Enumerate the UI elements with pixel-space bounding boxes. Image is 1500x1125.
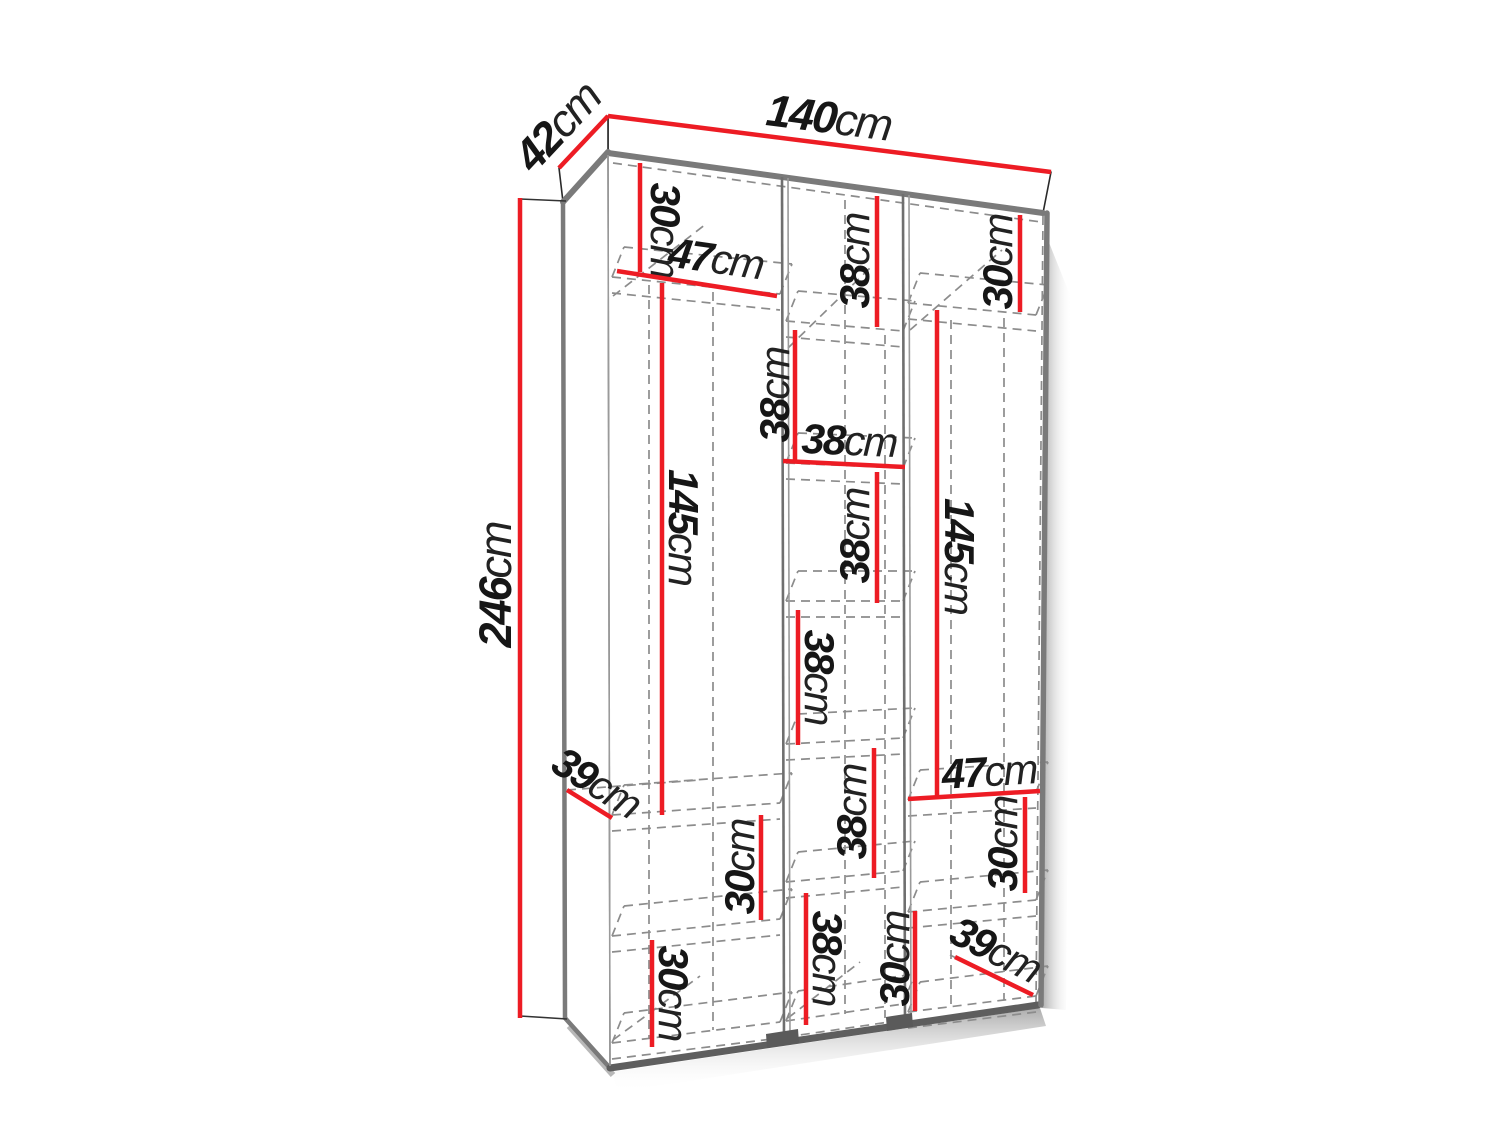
dimension-label: 30cm [974, 214, 1021, 310]
dimension-mid-section-1: 38cm [831, 196, 878, 327]
dimension-label: 145cm [937, 498, 984, 615]
dimension-right-mid-section: 30cm [979, 796, 1026, 893]
dimension-label: 38cm [828, 764, 875, 860]
dimension-label: 30cm [979, 796, 1026, 892]
dimension-label: 38cm [805, 911, 852, 1007]
dimension-label: 38cm [831, 488, 878, 584]
dimension-overall-height: 246cm [470, 198, 521, 1018]
diagram-canvas: 140cm42cm246cm30cm47cm145cm39cm30cm30cm3… [0, 0, 1500, 1125]
dimension-label: 30cm [716, 819, 763, 915]
dimension-right-top-section: 30cm [974, 214, 1021, 312]
dimension-mid-bottom-section: 38cm [805, 893, 852, 1025]
left-outer-edge [563, 202, 565, 1018]
height-tick-bottom [520, 1016, 567, 1019]
dimension-mid-section-5: 38cm [828, 748, 875, 878]
dimension-label: 30cm [651, 946, 698, 1042]
dimension-label: 30cm [871, 911, 918, 1007]
dimension-label: 38cm [801, 414, 899, 465]
dimension-label: 38cm [831, 213, 878, 309]
left-side-panel [563, 153, 610, 1068]
height-tick-top [520, 199, 566, 201]
dimension-label: 47cm [939, 745, 1038, 798]
extension-ticks [520, 199, 567, 1019]
dimension-label: 38cm [797, 630, 844, 726]
dimension-label: 145cm [661, 469, 708, 586]
dimension-label: 38cm [751, 347, 798, 443]
dimension-label: 246cm [470, 522, 521, 649]
dimension-mid-section-2: 38cm [751, 330, 798, 462]
dimension-left-bottom-section: 30cm [651, 940, 698, 1047]
wardrobe-dimension-diagram: 140cm42cm246cm30cm47cm145cm39cm30cm30cm3… [0, 0, 1500, 1125]
dimension-right-bottom-section: 30cm [871, 911, 918, 1011]
dimension-mid-section-3: 38cm [831, 472, 878, 603]
dimension-left-mid-section: 30cm [716, 815, 763, 920]
